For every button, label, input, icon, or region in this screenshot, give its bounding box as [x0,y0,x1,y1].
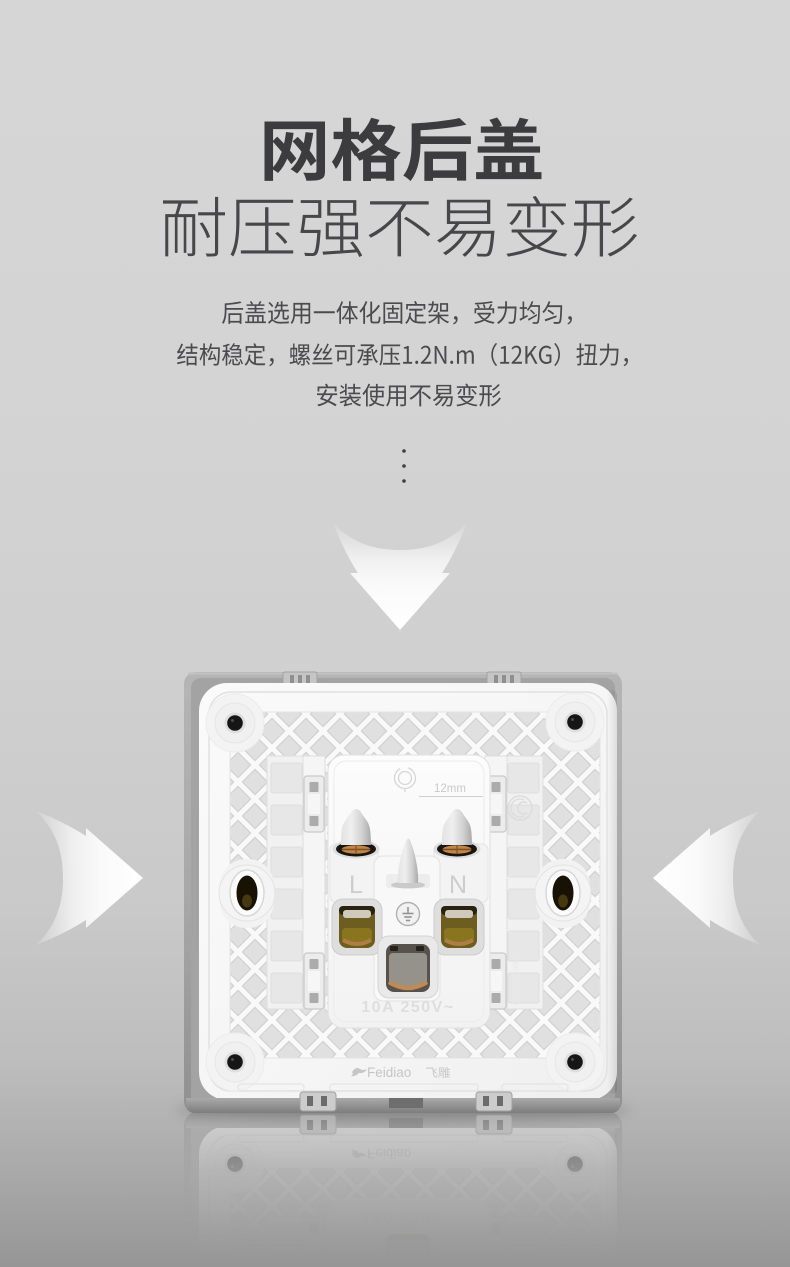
svg-text:GB/T 2099.1: GB/T 2099.1 [511,954,521,1005]
svg-text:N: N [449,871,467,899]
svg-text:10A 250V~: 10A 250V~ [361,999,454,1016]
svg-text:Feidiao: Feidiao [367,1065,411,1080]
svg-text:L: L [349,871,363,899]
svg-text:12mm: 12mm [434,783,466,795]
